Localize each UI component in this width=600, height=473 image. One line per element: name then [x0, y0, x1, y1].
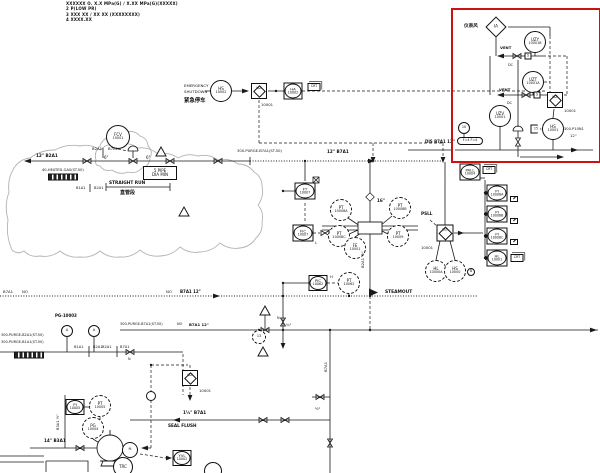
- pi-10005: PI10005: [66, 399, 85, 415]
- diagram-label: 12" B7A1: [327, 149, 349, 154]
- pi-10008b-circle: PI10008B: [488, 207, 507, 222]
- diagram-label: 16": [376, 198, 386, 203]
- symbol-text: 10000: [450, 271, 461, 275]
- symbol-text: F=4 F=4: [463, 139, 478, 142]
- screen-tag-2: [510, 218, 518, 224]
- gauge-a2: A: [88, 325, 100, 337]
- diagram-label: 10001: [199, 388, 211, 393]
- diagram-label: L: [315, 240, 317, 245]
- pic-10062-circle: PIC10062: [310, 276, 327, 290]
- diagram-label: 300-P10N1: [564, 127, 584, 131]
- diagram-label: N: [277, 316, 280, 320]
- bubble-b: B: [467, 268, 475, 276]
- symbol-text: 10001: [350, 248, 361, 252]
- pipe-spec-box: 5 PIPEDIA MIN: [143, 166, 177, 180]
- symbol-text: S: [527, 54, 529, 57]
- diagram-label: STEAMOUT: [385, 290, 412, 295]
- diagram-label: 1½" B7A1: [183, 410, 206, 415]
- uz-logic-esd: UZ: [251, 83, 267, 99]
- line-label-box-2: [14, 352, 44, 359]
- diagram-label: DC: [507, 101, 512, 105]
- hs-10001: HS10001: [542, 118, 564, 140]
- pid-diagram-canvas: IAUZY10001BUZT10001AUZUZV10001HS10001151…: [0, 0, 600, 473]
- ft-10007: FT10007: [295, 183, 316, 200]
- yvl-10002-circle: YVL10002: [174, 451, 191, 465]
- line-label-box-1: [48, 174, 78, 181]
- hs-10000: HS10000: [444, 260, 466, 282]
- diagram-label: NO: [166, 289, 172, 294]
- pg-10004: PG10004: [82, 417, 104, 439]
- hl-10001-display: HL10001: [487, 250, 508, 267]
- diagram-label: 300-PURGE-B1A1(ST.50): [1, 340, 44, 344]
- pi-10008a-circle: PI10008A: [488, 186, 507, 201]
- uzt-10001a: UZT10001A: [522, 71, 544, 93]
- symbol-text: TRC: [119, 465, 127, 469]
- bubble-10: 10: [458, 122, 470, 134]
- diagram-label: 6": [146, 155, 150, 160]
- drawing-note: 2 P(LOW PR): [66, 6, 97, 11]
- fic-10007: FIC10007: [293, 225, 314, 242]
- symbol-text: 10062: [313, 283, 324, 286]
- symbol-text: A: [93, 329, 95, 333]
- symbol-text: S: [536, 93, 538, 96]
- diagram-label: EMERGENCY: [184, 83, 208, 88]
- symbol-text: 10009: [393, 236, 404, 240]
- diagram-label: 14" B3A1: [44, 438, 66, 443]
- symbol-text: 15: [534, 127, 538, 130]
- symbol-text: B: [470, 270, 472, 274]
- symbol-text: 10000A: [429, 271, 442, 275]
- diagram-label: 紧急停车: [184, 96, 206, 104]
- symbol-text: 10001: [548, 129, 559, 133]
- diagram-label: B1A1: [76, 186, 86, 190]
- diagram-label: DC: [508, 63, 513, 67]
- diagram-label: SHUTDOWN: [184, 89, 207, 94]
- symbol-layer: IAUZY10001BUZT10001AUZUZV10001HS10001151…: [0, 0, 600, 473]
- symbol-text: 10: [462, 126, 466, 130]
- drawing-note: 4 XXXX.XX: [66, 17, 92, 22]
- symbol-text: 10008B: [491, 214, 504, 217]
- symbol-text: 10008A: [491, 193, 504, 196]
- diagram-label: 10001: [564, 108, 576, 113]
- diagram-label: B1A1: [74, 345, 84, 349]
- ha-10002: HA10002: [284, 83, 303, 100]
- symbol-text: 10005: [95, 406, 106, 410]
- symbol-text: 10001A: [526, 82, 539, 86]
- uzy-10001b: UZY10001B: [524, 31, 546, 53]
- ft-10007-circle: FT10007: [296, 184, 315, 199]
- diagram-label: ½": [315, 406, 320, 411]
- trc-bubble: TRC: [113, 457, 133, 473]
- diagram-label: NO: [22, 289, 28, 294]
- diagram-label: PG-10003: [55, 313, 77, 318]
- diagram-label: N: [128, 357, 131, 361]
- symbol-text: 10005: [70, 407, 81, 410]
- symbol-text: A: [66, 329, 68, 333]
- symbol-text: 10004: [88, 428, 99, 432]
- interlock-note: F=4 F=4: [457, 137, 483, 145]
- diagram-label: B7A1: [108, 146, 118, 151]
- symbol-text: 10001: [492, 258, 503, 261]
- diagram-label: VENT: [499, 87, 510, 92]
- drawing-note: XXXXXX O. X.X MPa(G) / X.XX MPa(G)(XXXXX…: [66, 1, 178, 6]
- diagram-label: ¾": [286, 322, 291, 327]
- symbol-text: 10002: [288, 91, 299, 94]
- diagram-label: B2A1: [92, 146, 102, 151]
- pt-10005: PT10005: [89, 395, 111, 417]
- diagram-label: 300-PURGE-B7A1(ST.50): [237, 149, 282, 153]
- symbol-text: 10008B: [393, 208, 406, 212]
- diagram-label: 12" B2A1: [36, 153, 58, 158]
- symbol-text: 10001B: [528, 42, 541, 46]
- pi-10008c-circle: PI10008C: [488, 229, 507, 244]
- symbol-text: CRT: [514, 256, 520, 259]
- ha-10002-circle: HA10002: [285, 84, 302, 99]
- pic-10062: PIC10062: [309, 275, 328, 291]
- symbol-text: M: [129, 448, 132, 452]
- pall-10004-circle: PALL10004: [461, 165, 480, 180]
- symbol-text: UZ: [548, 95, 562, 99]
- gauge-a1: A: [61, 325, 73, 337]
- symbol-text: 10008A: [334, 210, 347, 214]
- diagram-label: STRAIGHT RUN: [108, 181, 146, 186]
- pt-10062: PT10062: [338, 272, 360, 294]
- drawing-note: 3 XXX XX / XX XX (XXXXXXXX): [66, 12, 140, 17]
- diagram-label: 10001: [261, 102, 273, 107]
- diagram-label: B3A1 ½": [56, 414, 60, 430]
- diagram-label: PSLL: [421, 211, 432, 216]
- diagram-label: 300-PURGE-B2A1(ST.50): [1, 333, 44, 337]
- pt-10008a: PT10008A: [330, 199, 352, 221]
- diagram-label: B2A1 ½": [360, 251, 365, 268]
- symbol-text: 10002: [177, 458, 188, 461]
- diagram-label: B2A1: [102, 345, 112, 349]
- crt-tag-pall: CRT: [483, 166, 496, 174]
- junction-bubble: [146, 391, 156, 401]
- pi-10008c: PI10008C: [487, 228, 508, 245]
- symbol-text: 10004: [465, 172, 476, 175]
- diagram-label: 直管段: [119, 189, 136, 196]
- symbol-text: UZ: [252, 86, 266, 90]
- diagram-label: B7A1: [120, 345, 130, 349]
- diagram-label: DIS B7A1 12": [425, 139, 455, 144]
- pi-10005-circle: PI10005: [67, 400, 84, 414]
- symbol-text: 10007: [298, 233, 309, 236]
- symbol-text: 10008C: [491, 236, 504, 239]
- flag-15: 15: [531, 125, 542, 134]
- pt-10009: PT10009: [387, 225, 409, 247]
- symbol-text: IA: [494, 25, 498, 29]
- diagram-label: B7A1: [323, 362, 328, 372]
- diagram-label: H: [330, 274, 333, 279]
- fic-10007-circle: FIC10007: [294, 226, 313, 241]
- symbol-text: 13: [257, 335, 261, 339]
- diagram-label: 40-HEATED-GAS(ST.50): [42, 168, 84, 172]
- yvl-10002: YVL10002: [173, 450, 192, 466]
- seal-pot-bubble: [204, 462, 222, 473]
- uzv-10001: UZV10001: [489, 105, 511, 127]
- instrument-air-diamond: IA: [485, 16, 506, 37]
- symbol-text: 10002: [216, 91, 227, 95]
- symbol-text: 10062: [344, 283, 355, 287]
- pall-10004: PALL10004: [460, 164, 481, 181]
- diagram-label: 12": [570, 133, 577, 138]
- solenoid-2: S: [534, 92, 541, 99]
- diagram-label: 6": [104, 155, 108, 160]
- symbol-text: CRT: [311, 85, 317, 88]
- symbol-text: CRT: [486, 168, 492, 171]
- diagram-label: 10001: [421, 245, 433, 250]
- solenoid-1: S: [525, 53, 532, 60]
- motor-m: M: [122, 442, 138, 458]
- crt-tag-hl: CRT: [511, 254, 524, 262]
- diagram-label: B7A1 12": [180, 289, 201, 294]
- symbol-text: 10007: [300, 191, 311, 194]
- uz-logic-pump: UZ: [182, 370, 198, 386]
- diagram-label: B2A1: [94, 186, 104, 190]
- symbol-text: 10001: [113, 137, 124, 141]
- symbol-text: 10008C: [332, 236, 345, 240]
- symbol-text: DIA MIN: [152, 173, 168, 177]
- diagram-label: VENT: [500, 45, 511, 50]
- symbol-text: 10001: [495, 116, 506, 120]
- crt-tag-esd: CRT: [308, 83, 321, 91]
- diagram-label: B7A1: [3, 289, 13, 294]
- orifice-13: 13: [252, 330, 266, 344]
- screen-tag-1: [510, 196, 518, 202]
- pi-10008b: PI10008B: [487, 206, 508, 223]
- uz-logic-main: UZ: [437, 225, 454, 242]
- screen-tag-3: [510, 239, 518, 245]
- uz-logic-redbox: UZ: [547, 92, 563, 108]
- hl-10001-display-circle: HL10001: [488, 251, 507, 266]
- diagram-label: SEAL FLUSH: [168, 423, 197, 428]
- diagram-label: B7A1 12": [189, 322, 209, 327]
- diagram-label: 仪表风: [464, 23, 478, 29]
- symbol-text: UZ: [438, 228, 453, 232]
- diagram-label: NO: [177, 322, 182, 326]
- hs-10002: HS10002: [210, 80, 232, 102]
- pi-10008a: PI10008A: [487, 185, 508, 202]
- symbol-text: UZ: [183, 373, 197, 377]
- pt-10008b: PT10008B: [389, 197, 411, 219]
- diagram-label: 300-PURGE-B7A1(ST.50): [120, 322, 163, 326]
